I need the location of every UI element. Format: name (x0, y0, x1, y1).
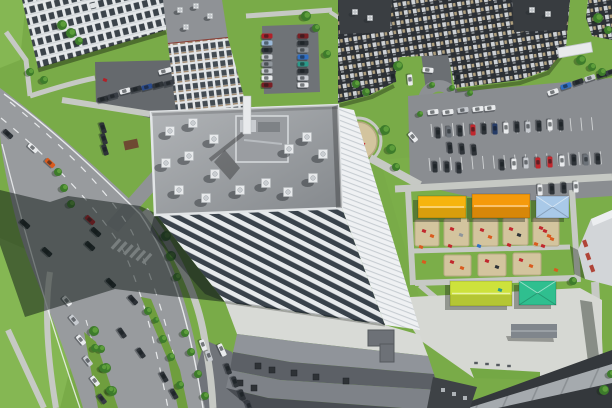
tree-highlight (365, 89, 369, 93)
tree-highlight (204, 393, 208, 397)
vent-cap (369, 17, 372, 20)
tree-highlight (69, 29, 75, 35)
tree-highlight (63, 185, 67, 189)
canopy-shade-side (418, 208, 466, 218)
car-glass (574, 184, 578, 189)
car-glass (584, 157, 588, 162)
car (582, 153, 589, 165)
car-glass (300, 34, 304, 37)
sand-plot (415, 220, 439, 246)
car (297, 62, 309, 69)
hvac-unit (343, 378, 349, 384)
car-glass (471, 127, 475, 132)
canopy-shade-side (450, 295, 512, 306)
tree-highlight (29, 69, 33, 73)
sand-plot (444, 219, 469, 246)
car (557, 118, 564, 130)
car-glass (264, 76, 268, 79)
car-glass (515, 124, 519, 129)
car (498, 158, 505, 170)
hvac-unit (291, 370, 297, 376)
car (546, 155, 553, 167)
penthouse-box-b (258, 122, 280, 132)
tree-highlight (395, 164, 399, 168)
aerial-photo (0, 0, 612, 408)
tree-highlight (420, 111, 423, 114)
tree-highlight (389, 145, 395, 151)
vent-cap (195, 5, 198, 8)
car (536, 183, 543, 195)
tree-highlight (197, 371, 201, 375)
shed-gray (506, 324, 557, 342)
car-glass (457, 165, 461, 170)
tree-highlight (60, 21, 65, 27)
vent-cap (177, 188, 182, 193)
car (546, 118, 553, 130)
car-glass (300, 83, 304, 86)
vent-cap (187, 154, 192, 159)
tree-highlight (57, 169, 61, 173)
vent-cap (354, 11, 357, 14)
car-glass (264, 48, 268, 51)
tree-highlight (452, 85, 455, 88)
vent-cap (238, 188, 243, 193)
tree-highlight (170, 354, 174, 358)
roof-vent-small (463, 396, 467, 400)
car-glass (524, 160, 528, 165)
car-glass (445, 110, 450, 114)
chimney (243, 96, 251, 134)
car-glass (550, 186, 554, 191)
vent-cap (185, 26, 188, 29)
car-glass (536, 160, 540, 165)
car-glass (300, 41, 304, 44)
playground-canopy (531, 196, 569, 222)
car (454, 71, 461, 83)
car-glass (472, 147, 476, 152)
tree-highlight (572, 278, 576, 282)
tree-highlight (579, 56, 585, 62)
car-glass (460, 108, 465, 112)
hvac-unit (313, 374, 319, 380)
car (572, 180, 579, 192)
sand-plot (513, 253, 541, 275)
car (297, 69, 309, 76)
vent-cap (168, 129, 173, 134)
car-glass (493, 126, 497, 131)
car-glass (537, 123, 541, 128)
car (455, 161, 462, 173)
tree-highlight (601, 69, 605, 73)
car (421, 67, 434, 75)
car-glass (425, 68, 430, 72)
vent-cap (321, 152, 326, 157)
tree-highlight (162, 336, 166, 340)
car (522, 156, 529, 168)
vent-cap (212, 137, 217, 142)
car-glass (482, 126, 486, 131)
car (434, 126, 441, 138)
car (261, 76, 273, 83)
car-glass (445, 164, 449, 169)
vent-cap (164, 161, 169, 166)
tree-highlight (102, 365, 106, 369)
car (535, 119, 542, 131)
car-glass (436, 130, 440, 135)
hvac-unit (251, 385, 257, 391)
sand-plot (503, 218, 528, 245)
playground-canopy (445, 281, 512, 310)
car (469, 143, 477, 156)
car (297, 34, 309, 41)
tree-highlight (43, 77, 47, 81)
roof-vent-small (441, 388, 445, 392)
tree-highlight (315, 25, 319, 29)
car-glass (456, 75, 460, 80)
car (548, 182, 555, 194)
dark-roof-west (338, 0, 392, 34)
car-glass (264, 55, 268, 58)
bench (507, 365, 511, 367)
roof-structure-b (380, 344, 394, 362)
car-glass (430, 110, 435, 114)
vent-cap (286, 190, 291, 195)
car-glass (572, 157, 576, 162)
vent-cap (209, 15, 212, 18)
vent-cap (264, 181, 269, 186)
car-glass (300, 48, 304, 51)
car-glass (458, 128, 462, 133)
car-glass (264, 41, 268, 44)
sand-plot (478, 254, 506, 276)
bench (474, 362, 478, 364)
car-glass (475, 107, 480, 111)
car-glass (504, 125, 508, 130)
car-glass (264, 34, 268, 37)
car (261, 62, 273, 69)
car-glass (447, 129, 451, 134)
tree-highlight (100, 346, 104, 350)
car (261, 48, 273, 55)
car (261, 34, 273, 41)
car (297, 48, 309, 55)
car-glass (300, 76, 304, 79)
dark-roof-east (512, 0, 570, 32)
bench (496, 364, 500, 366)
tree-highlight (184, 330, 188, 334)
car (443, 160, 450, 172)
scene-svg (0, 0, 612, 408)
hvac-unit (255, 363, 261, 369)
sand-plot (444, 255, 471, 276)
car-glass (548, 122, 552, 127)
tree-highlight (602, 386, 608, 392)
tree-highlight (326, 51, 330, 55)
car (570, 153, 577, 165)
tree-highlight (470, 90, 473, 93)
vent-cap (179, 9, 182, 12)
car (480, 122, 487, 134)
tree-highlight (109, 387, 113, 391)
car-glass (433, 164, 437, 169)
car-glass (548, 159, 552, 164)
tree-highlight (432, 82, 435, 85)
tree-highlight (190, 349, 194, 353)
tree-highlight (355, 81, 359, 85)
car (558, 154, 565, 166)
car (502, 121, 509, 133)
car (261, 83, 273, 90)
car (456, 124, 463, 136)
tree-highlight (396, 62, 402, 68)
playground-canopy (467, 194, 530, 222)
car-glass (538, 187, 542, 192)
vent-cap (213, 172, 218, 177)
car (457, 142, 465, 155)
car (469, 123, 476, 135)
playground-canopy (514, 281, 556, 309)
canopy-shade-side (472, 207, 530, 218)
car-glass (408, 77, 412, 82)
tree-highlight (147, 308, 151, 312)
tree-highlight (383, 126, 389, 132)
hvac-unit (269, 367, 275, 373)
car (510, 157, 517, 169)
car-glass (300, 62, 304, 65)
tree-highlight (607, 27, 611, 31)
car-glass (500, 162, 504, 167)
tree-highlight (92, 327, 98, 333)
car (297, 41, 309, 48)
car-glass (460, 146, 464, 151)
tree-highlight (156, 317, 159, 320)
car-glass (562, 185, 566, 190)
car (405, 73, 413, 86)
playground-canopy (413, 196, 466, 222)
car (445, 141, 453, 154)
tree-highlight (78, 38, 82, 42)
car (297, 76, 309, 83)
car-glass (300, 69, 304, 72)
car-glass (264, 69, 268, 72)
vent-cap (191, 121, 196, 126)
car (297, 83, 309, 90)
car-glass (526, 124, 530, 129)
car (431, 160, 438, 172)
vent-cap (531, 9, 534, 12)
car-glass (448, 145, 452, 150)
car (445, 125, 452, 137)
car (560, 181, 567, 193)
tree-highlight (179, 382, 183, 386)
car-glass (512, 161, 516, 166)
vent-cap (287, 147, 292, 152)
car (594, 152, 601, 164)
tree-highlight (591, 64, 595, 68)
car (524, 120, 531, 132)
car (261, 41, 273, 48)
sand-plot (473, 219, 498, 246)
car-glass (300, 55, 304, 58)
vent-cap (305, 135, 310, 140)
car (491, 122, 498, 134)
car-glass (487, 106, 492, 110)
vent-cap (547, 13, 550, 16)
car-glass (264, 62, 268, 65)
tree-highlight (596, 14, 602, 20)
roof-vent-small (452, 392, 456, 396)
car-glass (264, 83, 268, 86)
tree-highlight (304, 12, 310, 18)
car-glass (560, 158, 564, 163)
vent-cap (204, 196, 209, 201)
bench (485, 363, 489, 365)
car-glass (559, 122, 563, 127)
car (297, 55, 309, 62)
car (261, 69, 273, 76)
car-glass (596, 156, 600, 161)
vent-cap (311, 176, 316, 181)
car (534, 156, 541, 168)
car (513, 120, 520, 132)
car (261, 55, 273, 62)
tree-highlight (94, 345, 98, 349)
